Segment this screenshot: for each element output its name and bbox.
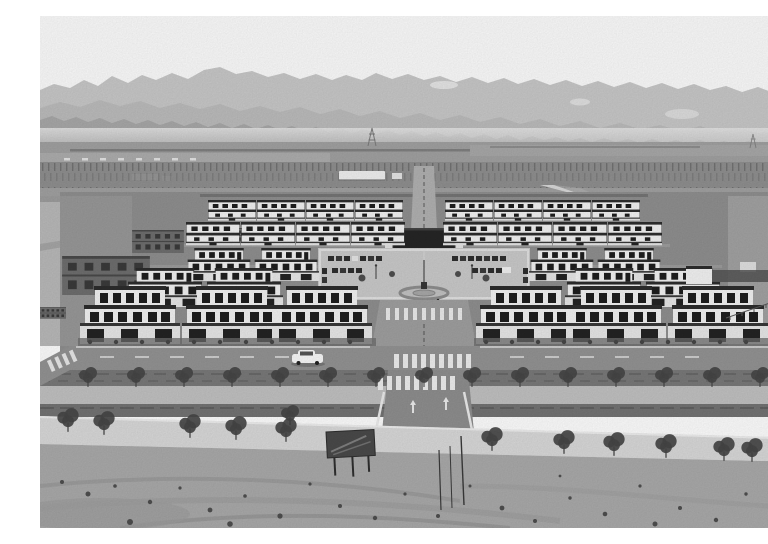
photo-grain <box>40 16 768 528</box>
aerial-photo <box>40 16 768 528</box>
